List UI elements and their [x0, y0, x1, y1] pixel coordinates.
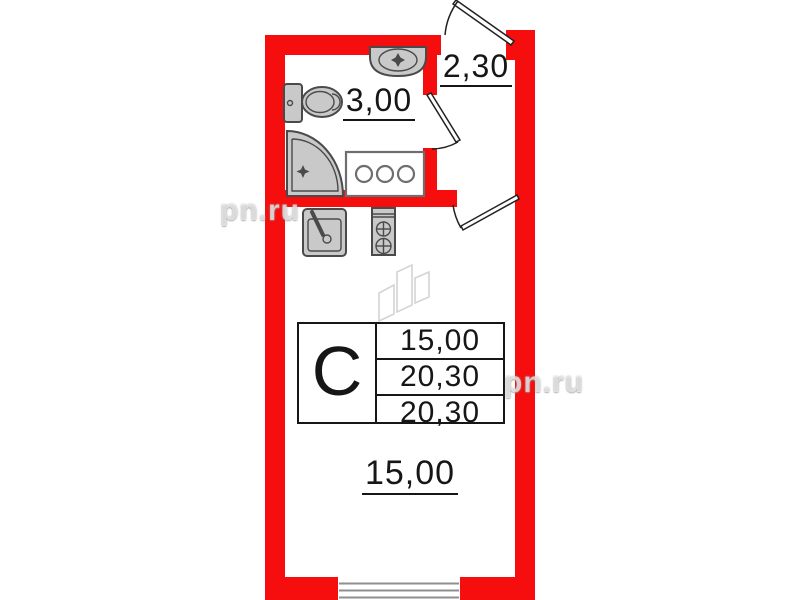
bathroom-area-dimension: 3,00 [329, 82, 429, 119]
washbasin [370, 47, 426, 76]
window [338, 577, 460, 600]
kitchen-sink [303, 209, 346, 256]
furniture-sketch [379, 265, 429, 321]
area-row-total: 20,30 [377, 360, 503, 396]
watermark-pnru-right: pn.ru [504, 366, 584, 400]
unit-type-cell: С [299, 324, 377, 422]
area-rows: 15,00 20,30 20,30 [377, 324, 503, 422]
room-area-dimension: 15,00 [350, 454, 470, 493]
hall-area-value: 2,30 [440, 48, 512, 87]
floor-plan: 3,00 2,30 15,00 С 15,00 20,30 20,30 pn.r… [0, 0, 800, 600]
bathroom-cabinet [346, 152, 424, 196]
entrance-door [445, 0, 514, 45]
area-table: С 15,00 20,30 20,30 [297, 322, 505, 424]
hall-area-dimension: 2,30 [426, 48, 526, 85]
bathroom-area-value: 3,00 [343, 82, 415, 121]
room-door [453, 195, 519, 230]
room-area-value: 15,00 [362, 454, 458, 495]
area-row-living: 15,00 [377, 324, 503, 360]
area-row-total-with-balcony: 20,30 [377, 396, 503, 430]
stove [372, 208, 395, 255]
shower [287, 131, 343, 196]
watermark-pnru-left: pn.ru [220, 194, 300, 228]
bathroom-door [427, 93, 460, 149]
